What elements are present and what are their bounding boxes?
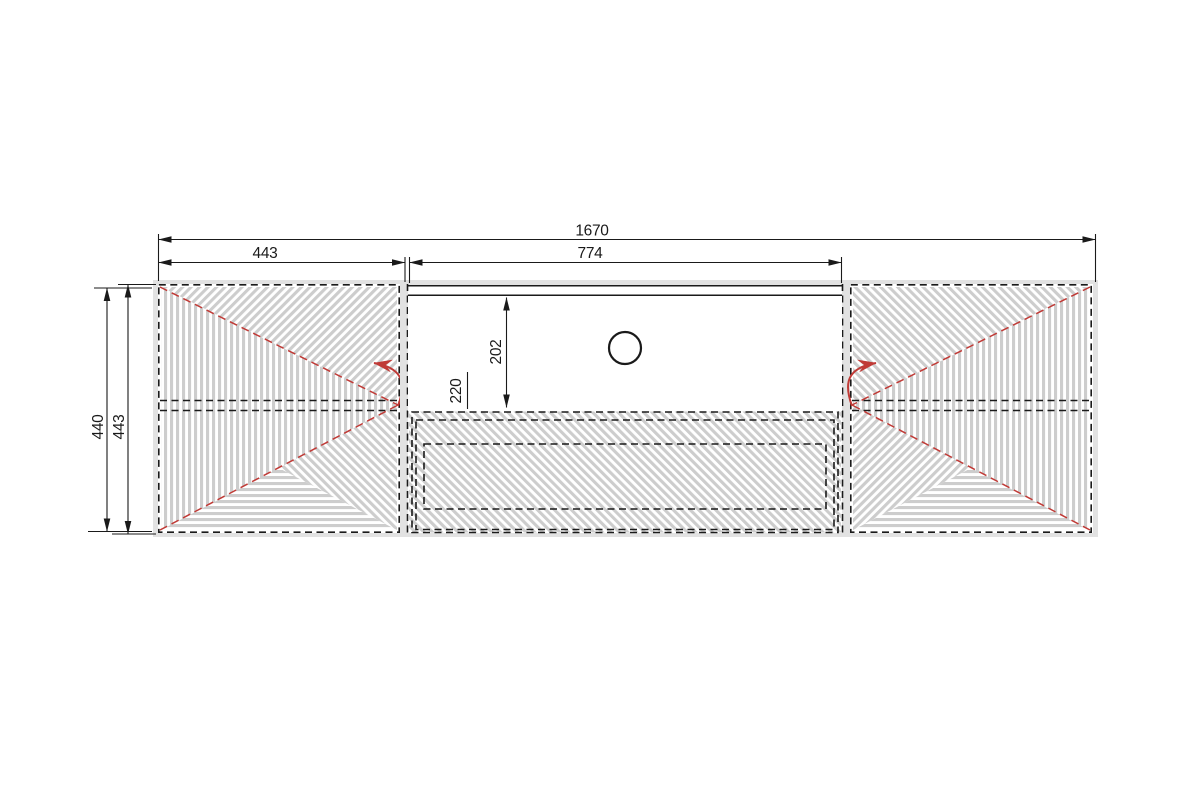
dimension-value-total-width: 1670 xyxy=(575,223,609,240)
dimension-front-height: 443 xyxy=(111,285,156,535)
dimension-value-carcass-height: 440 xyxy=(90,414,107,440)
cabinet-dimension-drawing: 1670 443 774 440 443 202 220 xyxy=(0,0,1200,800)
middle-section xyxy=(408,286,842,533)
technical-drawing-canvas: 1670 443 774 440 443 202 220 xyxy=(0,0,1200,800)
dimension-value-niche-width: 774 xyxy=(578,245,604,262)
dimension-total-width: 1670 xyxy=(159,223,1096,283)
dimension-niche-width: 774 xyxy=(410,245,842,283)
dimension-value-niche-inner-height: 202 xyxy=(488,340,505,365)
right-door-panel xyxy=(848,284,1092,533)
drawer-hatch xyxy=(409,412,841,533)
dimension-value-front-height: 443 xyxy=(111,415,128,440)
dimension-value-left-door-width: 443 xyxy=(253,245,278,262)
dimension-carcass-height: 440 xyxy=(88,288,152,532)
cable-hole xyxy=(609,332,641,364)
dimension-left-door-width: 443 xyxy=(159,245,406,282)
left-door-panel xyxy=(158,284,402,533)
dimension-value-niche-total-height: 220 xyxy=(448,378,465,404)
